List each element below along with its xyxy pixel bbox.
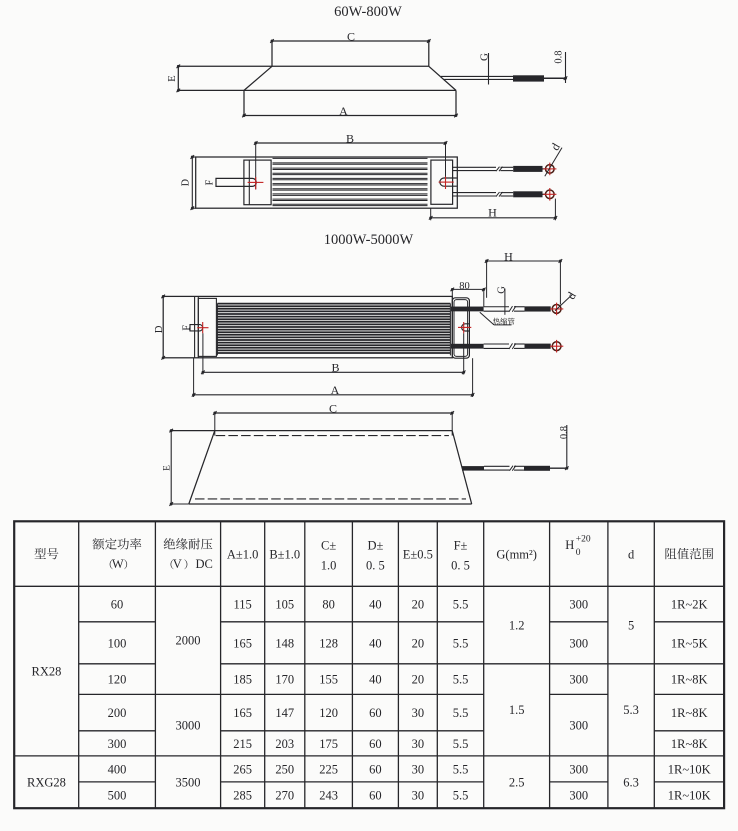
svg-text:B: B	[331, 361, 339, 375]
svg-text:H: H	[488, 206, 497, 220]
svg-text:E: E	[167, 75, 178, 81]
svg-text:80: 80	[322, 598, 335, 612]
svg-text:0. 5: 0. 5	[451, 558, 470, 572]
svg-text:d: d	[628, 547, 635, 561]
svg-text:1.2: 1.2	[509, 618, 525, 632]
svg-text:155: 155	[319, 673, 338, 687]
svg-text:V: V	[173, 557, 182, 571]
svg-text:E±0.5: E±0.5	[403, 547, 433, 561]
svg-text:165: 165	[233, 637, 252, 651]
svg-text:B±1.0: B±1.0	[269, 547, 300, 561]
svg-text:D±: D±	[367, 538, 383, 552]
svg-text:C: C	[347, 29, 355, 43]
svg-text:1.0: 1.0	[321, 558, 337, 572]
svg-text:1R~8K: 1R~8K	[671, 673, 708, 687]
svg-text:A: A	[339, 104, 348, 118]
svg-text:5.5: 5.5	[453, 673, 469, 687]
svg-text:20: 20	[412, 673, 425, 687]
svg-text:5.5: 5.5	[453, 789, 469, 803]
svg-text:30: 30	[412, 789, 425, 803]
svg-text:5.3: 5.3	[623, 703, 639, 717]
svg-text:0. 5: 0. 5	[366, 558, 385, 572]
svg-text:DC: DC	[196, 557, 213, 571]
svg-text:E: E	[163, 465, 173, 471]
svg-text:F: F	[205, 179, 216, 185]
svg-text:A: A	[331, 383, 340, 397]
svg-text:300: 300	[569, 637, 588, 651]
svg-text:1R~10K: 1R~10K	[668, 762, 711, 776]
svg-text:200: 200	[108, 706, 127, 720]
svg-text:265: 265	[233, 762, 252, 776]
svg-text:128: 128	[319, 637, 338, 651]
svg-text:60W-800W: 60W-800W	[334, 4, 402, 20]
svg-text:1R~10K: 1R~10K	[668, 789, 711, 803]
svg-text:120: 120	[319, 706, 338, 720]
svg-text:5.5: 5.5	[453, 737, 469, 751]
svg-text:1.5: 1.5	[509, 703, 525, 717]
svg-text:5.5: 5.5	[453, 762, 469, 776]
svg-text:285: 285	[233, 789, 252, 803]
svg-text:RXG28: RXG28	[27, 775, 66, 789]
svg-text:0: 0	[576, 548, 581, 558]
svg-text:G: G	[497, 286, 508, 294]
svg-text:40: 40	[369, 637, 382, 651]
svg-text:115: 115	[234, 598, 252, 612]
svg-text:60: 60	[369, 706, 382, 720]
svg-text:30: 30	[412, 762, 425, 776]
svg-text:185: 185	[233, 673, 252, 687]
svg-text:D: D	[181, 179, 192, 186]
svg-text:+20: +20	[576, 535, 591, 545]
svg-text:G: G	[479, 53, 491, 61]
svg-text:300: 300	[108, 737, 127, 751]
svg-text:2000: 2000	[176, 634, 201, 648]
svg-text:30: 30	[412, 706, 425, 720]
svg-text:5.5: 5.5	[453, 598, 469, 612]
svg-text:148: 148	[275, 637, 294, 651]
svg-text:20: 20	[412, 637, 425, 651]
svg-text:300: 300	[569, 719, 588, 733]
svg-text:243: 243	[319, 789, 338, 803]
svg-text:H: H	[565, 538, 574, 552]
svg-text:W: W	[112, 557, 124, 571]
svg-text:1R~8K: 1R~8K	[671, 737, 708, 751]
svg-text:60: 60	[369, 762, 382, 776]
svg-text:400: 400	[108, 762, 127, 776]
svg-text:1000W-5000W: 1000W-5000W	[324, 232, 414, 248]
svg-text:2.5: 2.5	[509, 776, 525, 790]
svg-text:1R~8K: 1R~8K	[671, 706, 708, 720]
svg-text:300: 300	[569, 598, 588, 612]
svg-text:300: 300	[569, 673, 588, 687]
svg-text:5.5: 5.5	[453, 637, 469, 651]
svg-text:175: 175	[319, 737, 338, 751]
svg-text:215: 215	[233, 737, 252, 751]
svg-text:3500: 3500	[176, 776, 201, 790]
svg-text:165: 165	[233, 706, 252, 720]
svg-text:30: 30	[412, 737, 425, 751]
svg-text:H: H	[504, 249, 513, 263]
svg-text:1R~5K: 1R~5K	[671, 637, 708, 651]
svg-text:0.8: 0.8	[554, 50, 565, 63]
svg-text:203: 203	[275, 737, 294, 751]
svg-text:G(mm²): G(mm²)	[496, 547, 537, 561]
svg-text:6.3: 6.3	[623, 776, 639, 790]
svg-text:270: 270	[275, 789, 294, 803]
svg-text:40: 40	[369, 673, 382, 687]
svg-text:60: 60	[111, 598, 124, 612]
svg-text:60: 60	[369, 737, 382, 751]
svg-text:60: 60	[369, 789, 382, 803]
svg-text:5: 5	[628, 618, 634, 632]
svg-text:100: 100	[108, 637, 127, 651]
svg-text:40: 40	[369, 598, 382, 612]
svg-text:C: C	[329, 401, 337, 415]
svg-text:F±: F±	[454, 538, 468, 552]
svg-text:170: 170	[275, 673, 294, 687]
svg-text:A±1.0: A±1.0	[227, 547, 259, 561]
svg-text:0.8: 0.8	[559, 426, 570, 439]
svg-text:D: D	[154, 325, 165, 333]
svg-text:C±: C±	[321, 538, 336, 552]
svg-text:F: F	[181, 325, 192, 331]
svg-text:1R~2K: 1R~2K	[671, 598, 708, 612]
svg-text:300: 300	[569, 762, 588, 776]
svg-text:500: 500	[108, 789, 127, 803]
svg-text:20: 20	[412, 598, 425, 612]
svg-text:80: 80	[459, 281, 470, 292]
svg-text:RX28: RX28	[32, 664, 62, 678]
svg-text:5.5: 5.5	[453, 706, 469, 720]
svg-text:3000: 3000	[176, 719, 201, 733]
svg-text:120: 120	[108, 673, 127, 687]
svg-text:225: 225	[319, 762, 338, 776]
svg-text:147: 147	[275, 706, 294, 720]
svg-text:300: 300	[569, 789, 588, 803]
svg-text:250: 250	[275, 762, 294, 776]
svg-text:105: 105	[275, 598, 294, 612]
svg-text:B: B	[346, 131, 354, 145]
